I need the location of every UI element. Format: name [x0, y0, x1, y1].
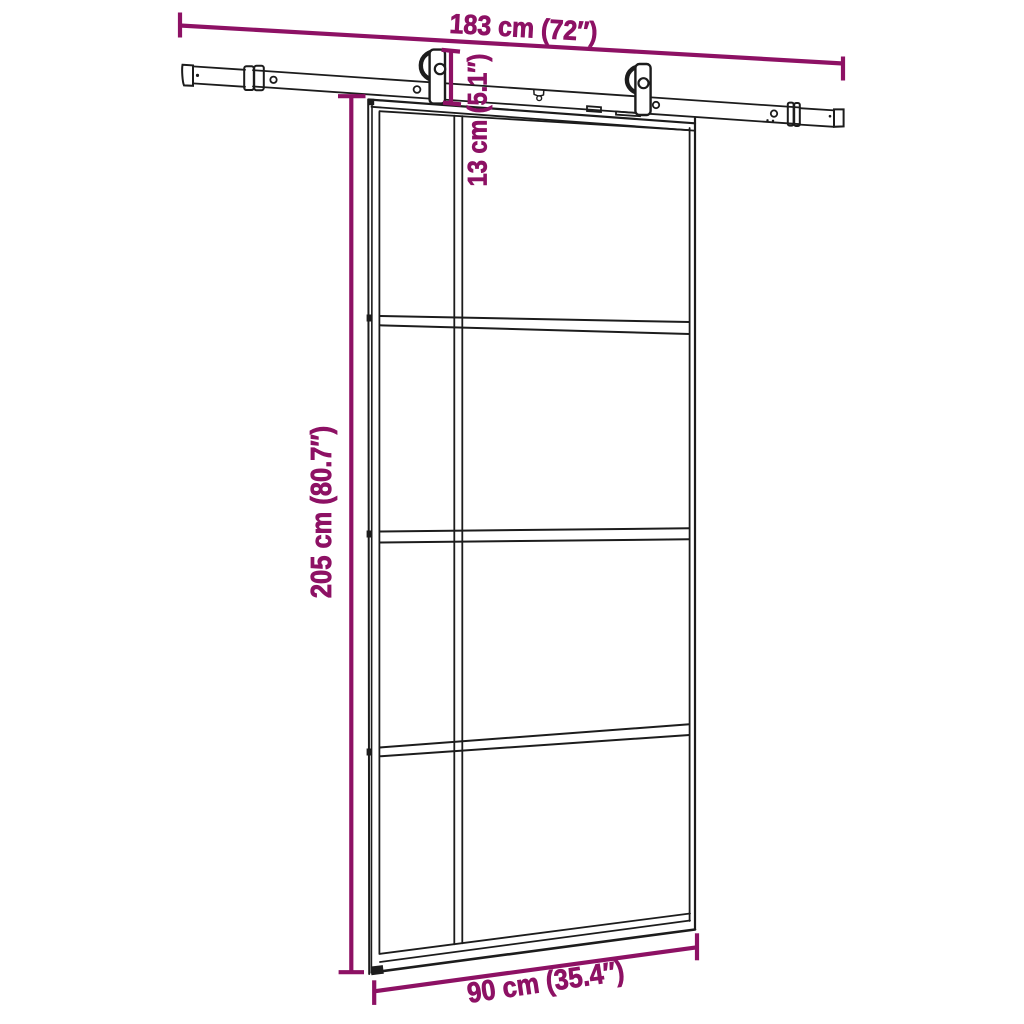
svg-text:13 cm (5.1″): 13 cm (5.1″)	[463, 54, 493, 187]
svg-text:205 cm (80.7″): 205 cm (80.7″)	[305, 426, 338, 598]
svg-text:90 cm (35.4″): 90 cm (35.4″)	[465, 954, 626, 1009]
